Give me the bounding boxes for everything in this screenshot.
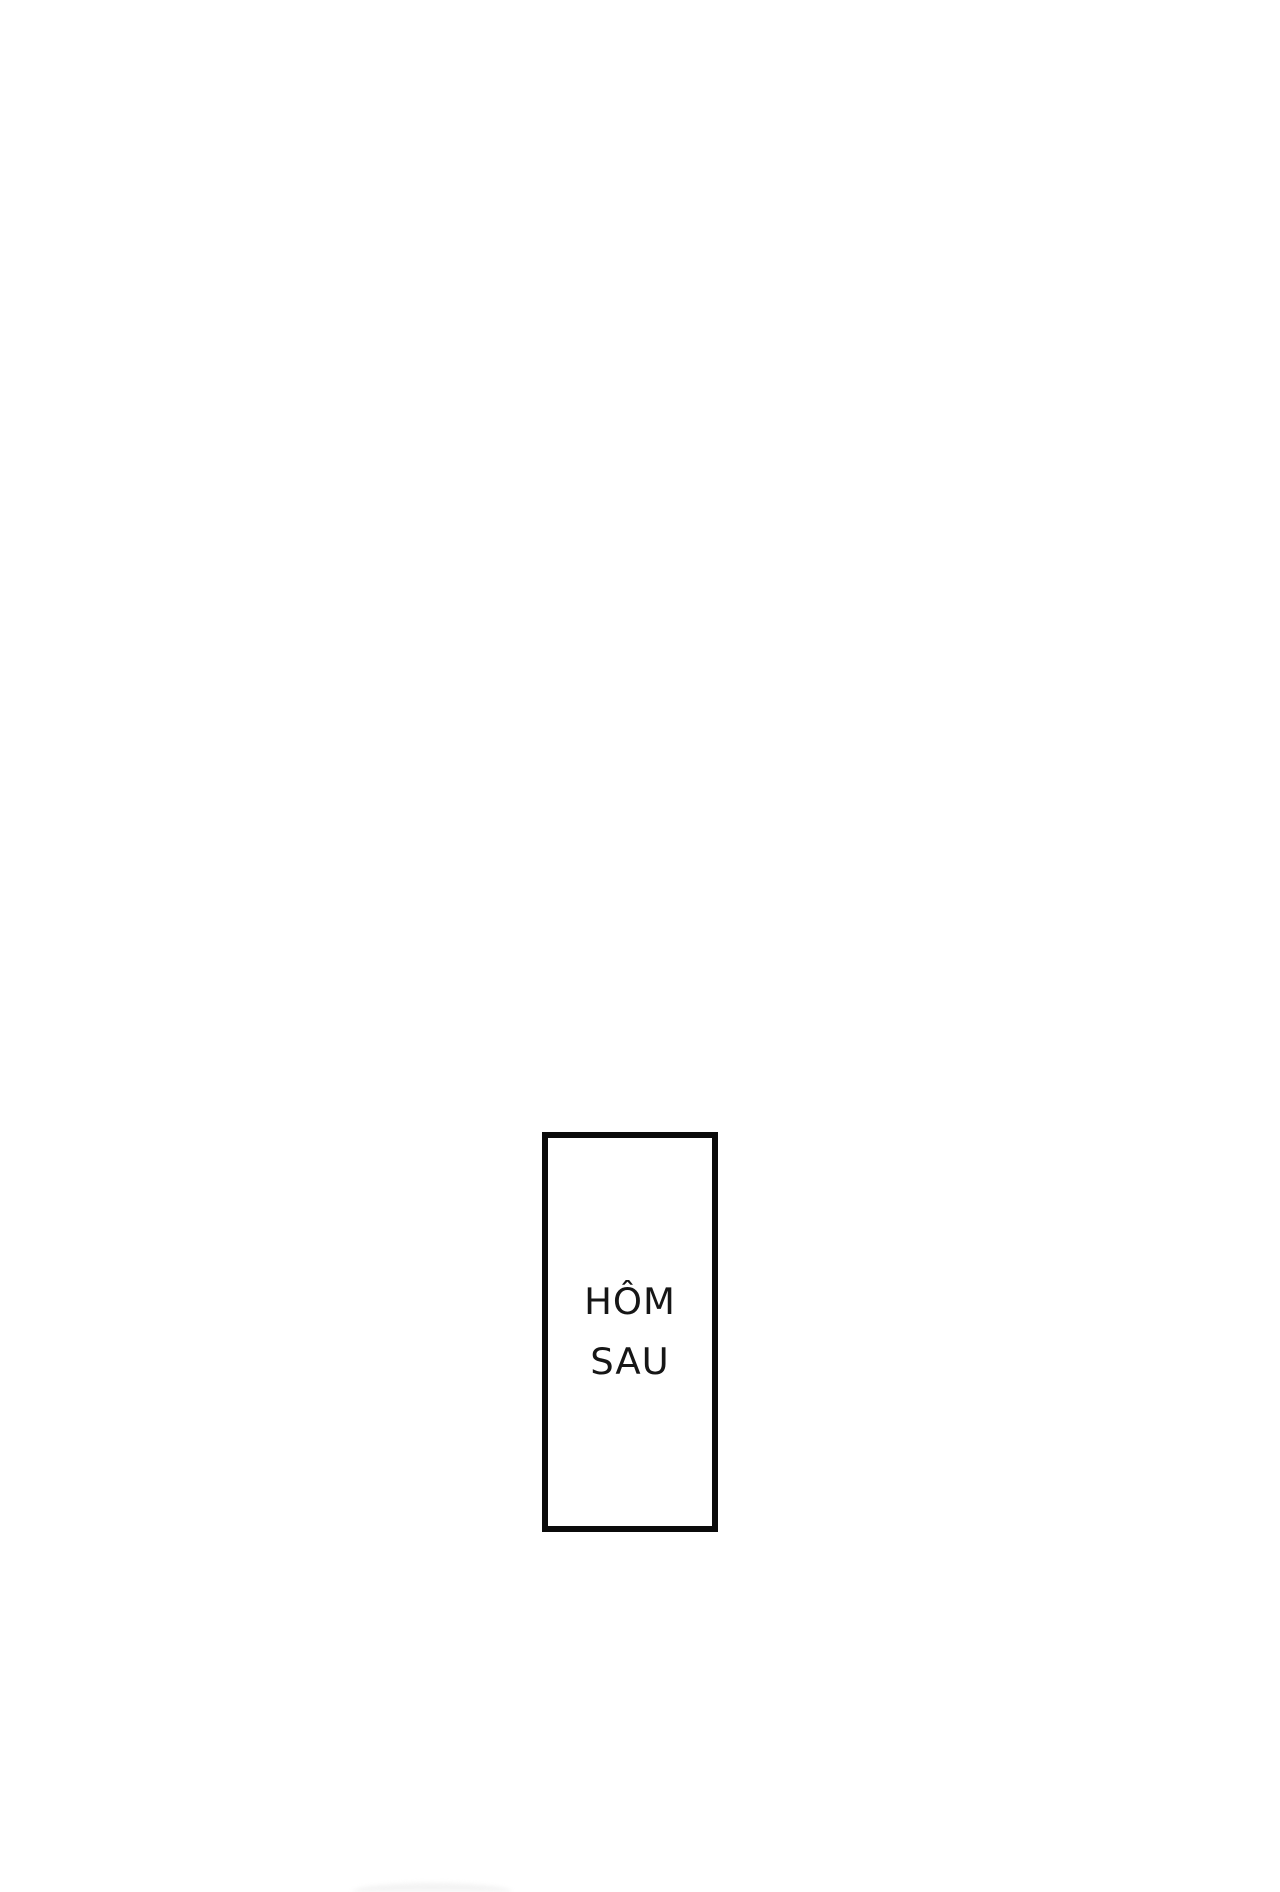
comic-page: HÔM SAU xyxy=(0,0,1280,1890)
page-bottom-cutoff-artifact xyxy=(352,1883,512,1892)
caption-text-line-2: SAU xyxy=(590,1333,670,1392)
caption-panel: HÔM SAU xyxy=(542,1132,718,1532)
caption-text-line-1: HÔM xyxy=(584,1273,676,1332)
